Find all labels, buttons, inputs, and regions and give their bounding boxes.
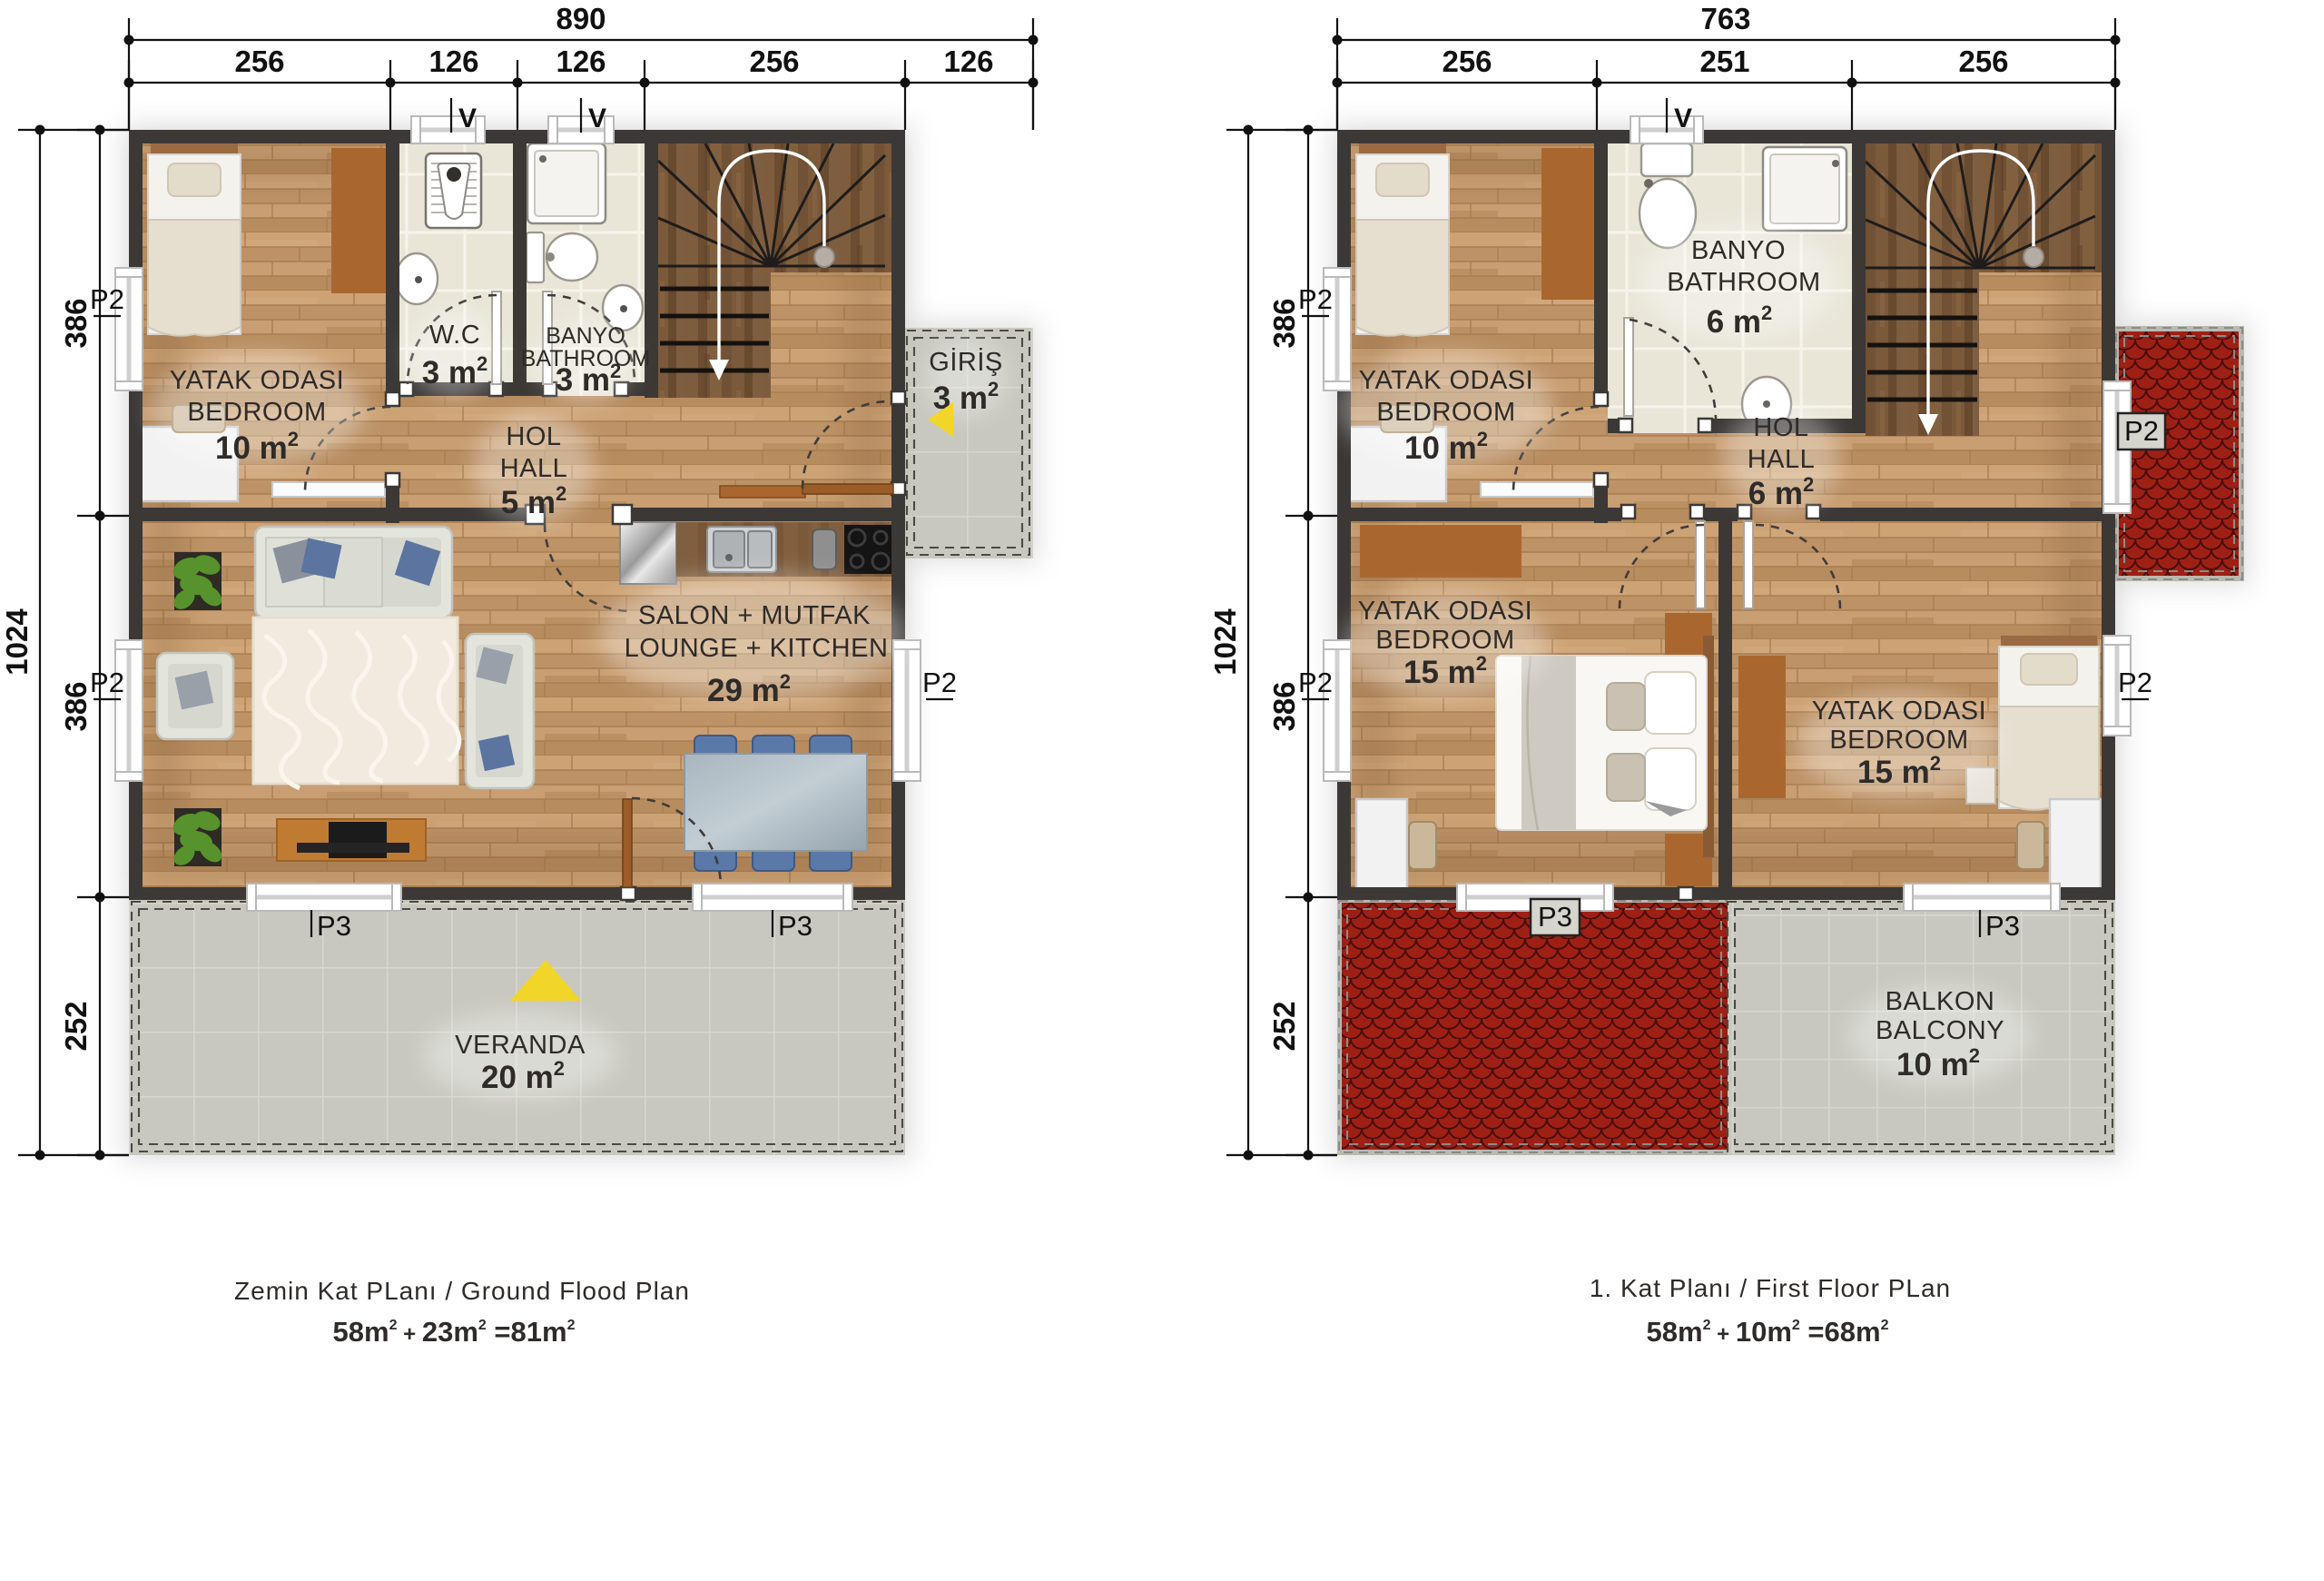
svg-text:VERANDA: VERANDA (455, 1031, 586, 1060)
svg-text:BANYO: BANYO (546, 323, 625, 349)
svg-text:P2: P2 (2118, 667, 2152, 698)
svg-text:252: 252 (1267, 1001, 1301, 1051)
svg-text:10 m2: 10 m2 (215, 428, 299, 466)
svg-text:YATAK ODASI: YATAK ODASI (170, 366, 344, 395)
svg-text:P2: P2 (90, 667, 124, 698)
svg-text:256: 256 (1958, 44, 2008, 78)
svg-text:256: 256 (1442, 44, 1492, 78)
svg-text:Zemin Kat PLanı / Ground Flood: Zemin Kat PLanı / Ground Flood Plan (234, 1277, 690, 1305)
svg-text:BEDROOM: BEDROOM (1376, 398, 1515, 427)
svg-text:HALL: HALL (500, 454, 568, 483)
svg-text:890: 890 (556, 2, 606, 35)
svg-text:P2: P2 (2124, 415, 2159, 447)
svg-text:BANYO: BANYO (1691, 236, 1786, 265)
svg-text:P3: P3 (1538, 901, 1572, 933)
svg-text:P2: P2 (922, 667, 957, 698)
svg-text:V: V (1674, 104, 1692, 133)
svg-text:386: 386 (59, 681, 93, 731)
svg-text:LOUNGE + KITCHEN: LOUNGE + KITCHEN (625, 634, 889, 663)
svg-text:386: 386 (1267, 298, 1301, 348)
svg-text:BATHROOM: BATHROOM (1667, 268, 1820, 297)
svg-text:1024: 1024 (0, 608, 34, 676)
svg-text:29 m2: 29 m2 (707, 670, 791, 708)
svg-text:P3: P3 (1985, 910, 2020, 942)
svg-text:V: V (458, 104, 477, 133)
svg-text:W.C: W.C (429, 321, 480, 350)
svg-text:10 m2: 10 m2 (1404, 428, 1488, 466)
svg-text:386: 386 (59, 298, 93, 348)
svg-text:15 m2: 15 m2 (1403, 652, 1487, 690)
svg-text:HALL: HALL (1748, 445, 1816, 474)
svg-text:P3: P3 (317, 910, 351, 942)
svg-text:20 m2: 20 m2 (481, 1057, 565, 1095)
svg-text:256: 256 (234, 44, 284, 78)
svg-text:P3: P3 (778, 910, 812, 942)
svg-text:YATAK ODASI: YATAK ODASI (1358, 597, 1532, 626)
svg-text:15 m2: 15 m2 (1857, 752, 1941, 790)
svg-text:251: 251 (1699, 44, 1749, 78)
svg-text:YATAK ODASI: YATAK ODASI (1812, 697, 1986, 726)
svg-text:58m2 + 23m2 =81m2: 58m2 + 23m2 =81m2 (333, 1316, 576, 1348)
svg-text:58m2 + 10m2 =68m2: 58m2 + 10m2 =68m2 (1647, 1316, 1889, 1348)
svg-text:BALCONY: BALCONY (1876, 1016, 2004, 1045)
svg-text:P2: P2 (1298, 283, 1333, 315)
svg-text:P2: P2 (1298, 667, 1333, 698)
svg-text:763: 763 (1700, 2, 1750, 35)
svg-text:126: 126 (943, 44, 993, 78)
svg-text:126: 126 (556, 44, 606, 78)
svg-text:BEDROOM: BEDROOM (1829, 726, 1968, 755)
svg-text:252: 252 (59, 1001, 93, 1051)
svg-text:BEDROOM: BEDROOM (187, 398, 326, 427)
svg-text:256: 256 (749, 44, 799, 78)
svg-text:BALKON: BALKON (1886, 987, 1995, 1016)
svg-text:10 m2: 10 m2 (1896, 1044, 1980, 1082)
svg-text:1024: 1024 (1208, 608, 1242, 676)
svg-text:HOL: HOL (506, 422, 561, 451)
svg-text:126: 126 (428, 44, 478, 78)
svg-text:V: V (588, 104, 606, 133)
svg-text:YATAK ODASI: YATAK ODASI (1359, 366, 1533, 395)
svg-text:SALON + MUTFAK: SALON + MUTFAK (638, 601, 871, 630)
svg-text:BEDROOM: BEDROOM (1375, 626, 1514, 655)
svg-text:1. Kat Planı / First Floor PLa: 1. Kat Planı / First Floor PLan (1590, 1274, 1951, 1302)
svg-text:HOL: HOL (1753, 413, 1808, 442)
svg-text:GİRİŞ: GİRİŞ (929, 347, 1002, 377)
svg-text:386: 386 (1267, 681, 1301, 731)
svg-text:P2: P2 (90, 283, 124, 315)
